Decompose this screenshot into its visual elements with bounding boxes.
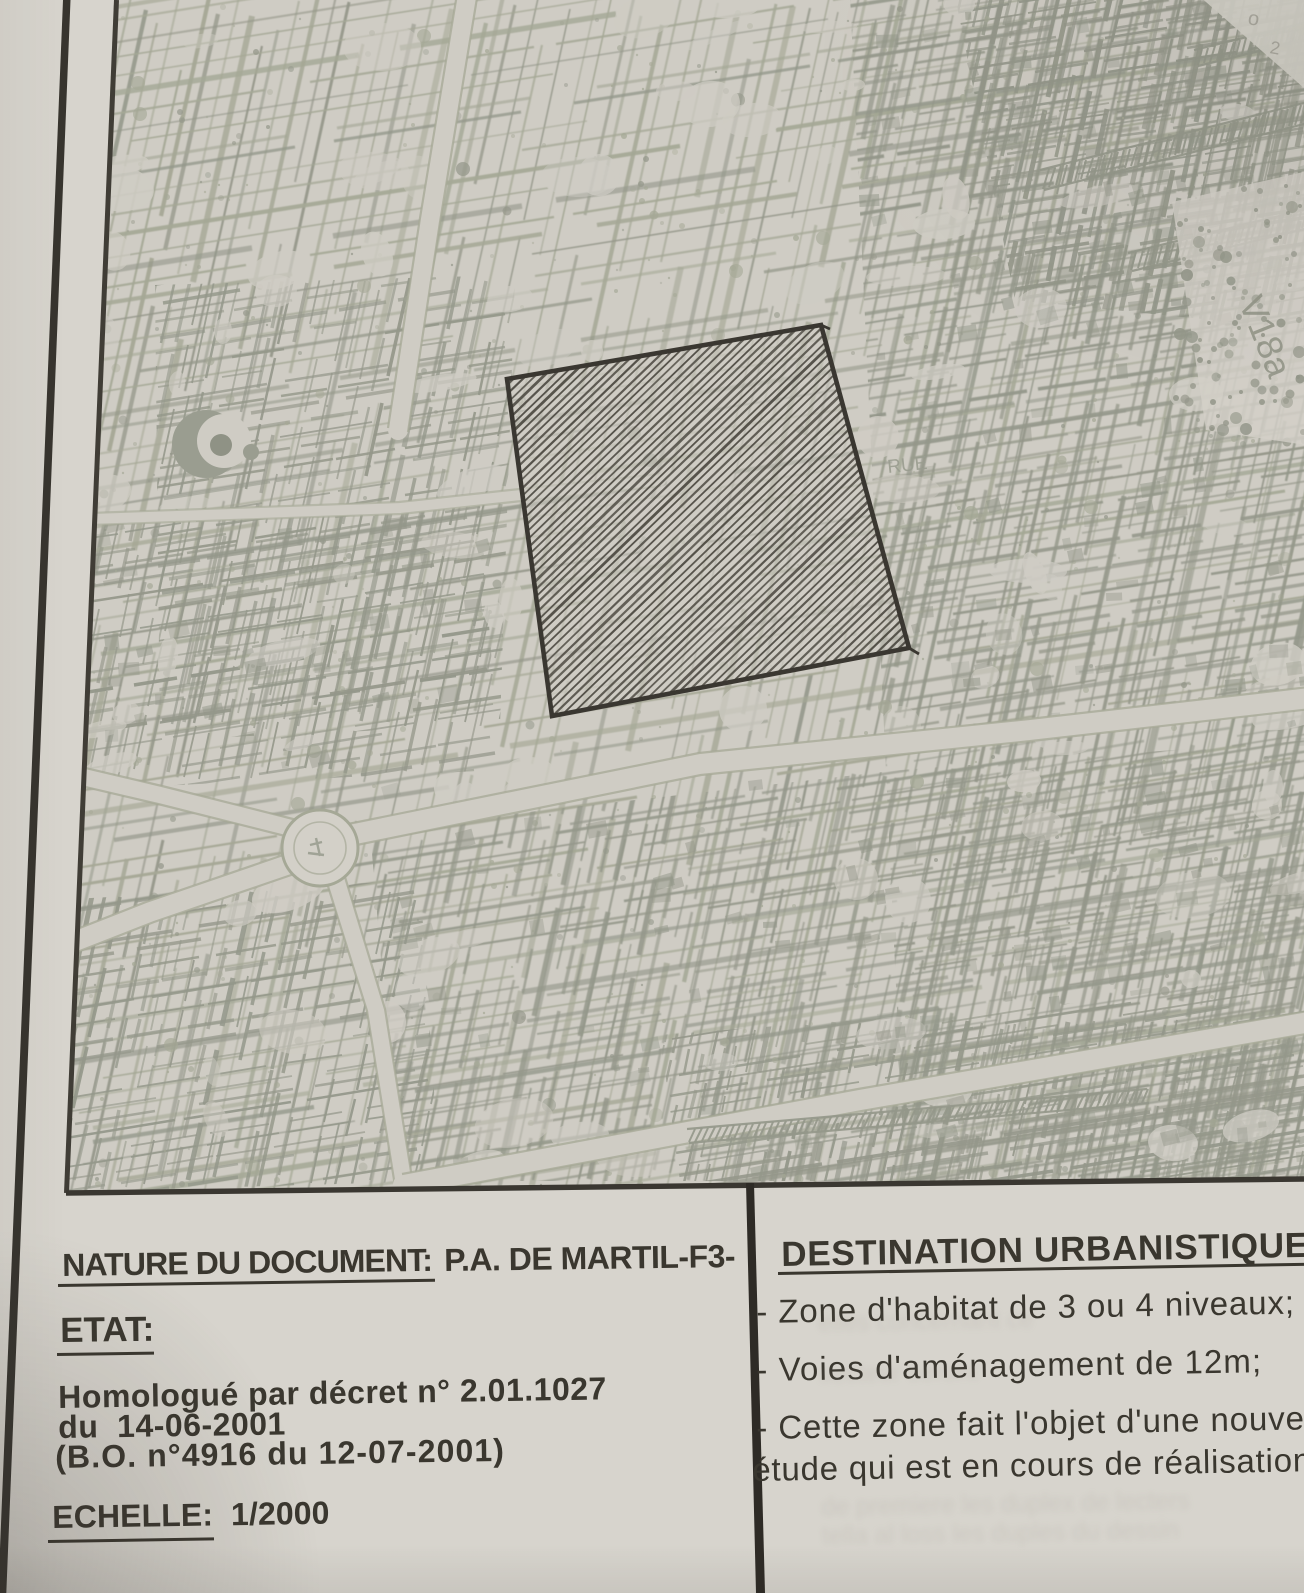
- svg-text:RUE: RUE: [886, 453, 928, 478]
